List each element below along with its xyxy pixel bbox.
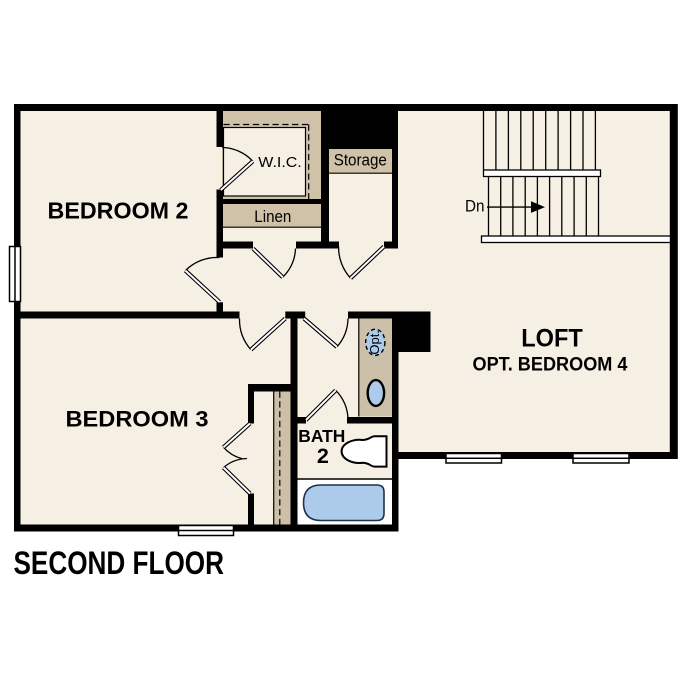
svg-text:BEDROOM 3: BEDROOM 3 (66, 407, 209, 432)
svg-text:OPT. BEDROOM 4: OPT. BEDROOM 4 (473, 353, 628, 375)
svg-text:LOFT: LOFT (521, 326, 583, 353)
svg-text:Dn: Dn (465, 197, 485, 215)
svg-text:BATH: BATH (298, 426, 345, 446)
svg-text:W.I.C.: W.I.C. (258, 154, 302, 171)
svg-text:SECOND FLOOR: SECOND FLOOR (14, 545, 225, 581)
svg-text:2: 2 (317, 444, 329, 468)
svg-text:BEDROOM 2: BEDROOM 2 (48, 198, 189, 224)
svg-text:Storage: Storage (334, 151, 387, 170)
svg-text:Linen: Linen (254, 207, 291, 226)
svg-text:Opt.: Opt. (367, 330, 382, 355)
